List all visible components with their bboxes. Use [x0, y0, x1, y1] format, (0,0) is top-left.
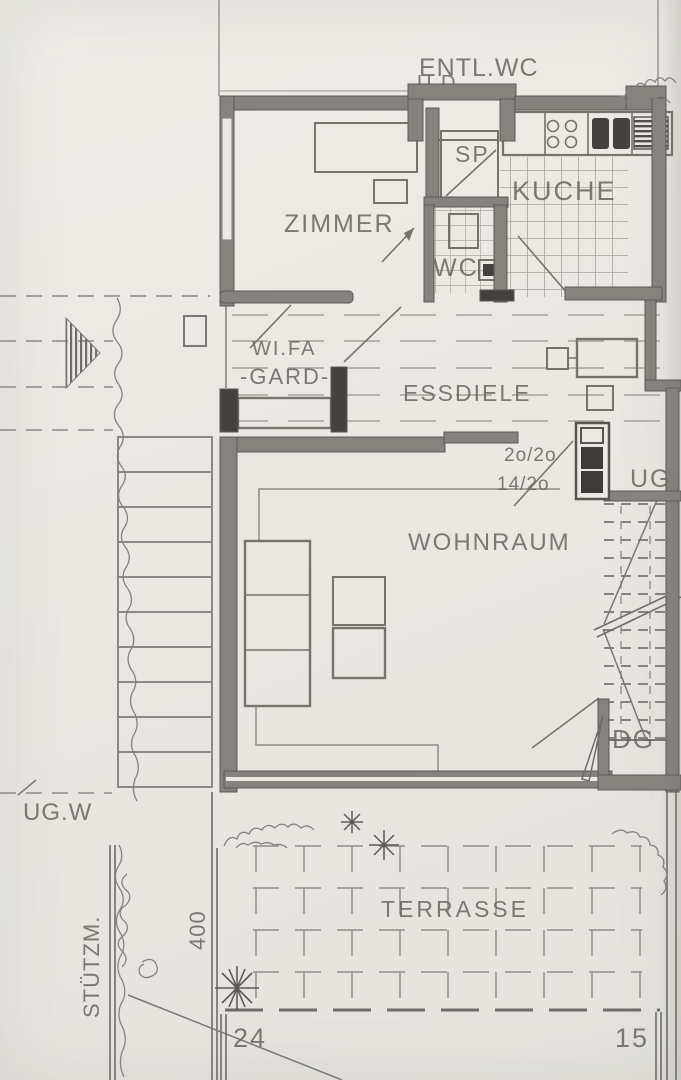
- plant-star-small: [341, 811, 363, 833]
- wardrobe-post-right: [331, 367, 347, 432]
- floor-plan-sheet: ENTL.WC U.D. ZIMMER SP KUCHE WC WI.FA -G…: [0, 0, 681, 1080]
- level-label-dg: DG: [612, 726, 655, 753]
- coffee-table-1: [333, 577, 385, 625]
- sink-basin-left: [592, 118, 609, 149]
- hedge-line-left-lower: [115, 845, 125, 1077]
- wardrobe: [238, 398, 331, 428]
- room-label-wc: WC: [433, 255, 479, 281]
- dining-chair-2: [587, 386, 613, 410]
- dimension-400: 400: [186, 910, 209, 950]
- sofa-cushion-lines: [245, 595, 310, 650]
- room-label-wohnraum: WOHNRAUM: [408, 530, 571, 555]
- chimney-shaft: [576, 423, 609, 499]
- stove-burners: [548, 121, 577, 148]
- wall-living-left: [220, 437, 237, 792]
- wall-top-right: [515, 96, 628, 110]
- label-ug-w: UG.W: [23, 800, 92, 825]
- porch-head: [408, 84, 516, 100]
- room-label-sp: SP: [455, 142, 490, 166]
- wall-top-left: [220, 96, 414, 110]
- porch-right-jamb: [500, 99, 515, 141]
- stair-walkline-up: [604, 500, 657, 624]
- shrub-terrace-left-inner: [236, 842, 287, 848]
- room-label-kueche: KUCHE: [512, 177, 617, 205]
- sofa: [245, 541, 310, 706]
- scan-edge-shadow: [661, 0, 681, 1080]
- porch-note-label: U.D.: [417, 73, 465, 85]
- window-front-glass-line: [226, 777, 610, 781]
- wall-niche-vertical: [645, 300, 656, 390]
- wall-living-top: [224, 437, 445, 452]
- hedge-line-left: [113, 298, 138, 801]
- stair-dimension-1: 2o/2o: [504, 446, 557, 466]
- room-label-wifa: WI.FA: [252, 339, 316, 360]
- stair-dimension-2: 14/2o: [497, 475, 550, 495]
- wall-hall-stair: [444, 432, 518, 443]
- contour-dashed-lines: [0, 296, 210, 793]
- sink-basin-right: [613, 118, 630, 149]
- room-label-terrasse: TERRASSE: [381, 897, 529, 921]
- plant-star-large: [215, 966, 259, 1010]
- wc-sink-basin: [483, 264, 494, 276]
- room-label-gard: -GARD-: [240, 365, 330, 388]
- wall-dg-left: [598, 699, 609, 787]
- garden-steps: [118, 437, 212, 787]
- zimmer-window: [222, 118, 232, 240]
- living-door-line: [532, 698, 599, 748]
- nightstand: [374, 180, 407, 203]
- dimension-24: 24: [233, 1024, 267, 1052]
- wall-zimmer-pantry: [426, 108, 439, 205]
- dimension-15: 15: [615, 1024, 649, 1052]
- dining-table: [577, 339, 637, 377]
- room-label-essdiele: ESSDIELE: [403, 381, 532, 405]
- zimmer-door-arrowhead: [404, 228, 414, 241]
- bed: [315, 123, 417, 172]
- plant-star-medium: [369, 830, 399, 860]
- coffee-table-2: [333, 628, 385, 678]
- wc-door-threshold: [480, 290, 514, 301]
- garden-pillar: [184, 316, 206, 346]
- seating-area-outline-bottom: [256, 706, 438, 772]
- dining-chair: [547, 348, 568, 369]
- wall-kitchen-bottom: [565, 287, 662, 300]
- wall-zimmer-hall: [220, 291, 353, 303]
- terrace-grid: [253, 846, 642, 1008]
- wardrobe-post-left: [220, 389, 238, 432]
- porch-left-jamb: [408, 99, 423, 141]
- scribble-loop: [139, 959, 157, 977]
- label-stuetzmauer: STÜTZM.: [80, 916, 103, 1018]
- wall-wc-right: [494, 205, 507, 302]
- slope-arrow-hatched: [66, 318, 100, 388]
- room-label-zimmer: ZIMMER: [284, 211, 395, 237]
